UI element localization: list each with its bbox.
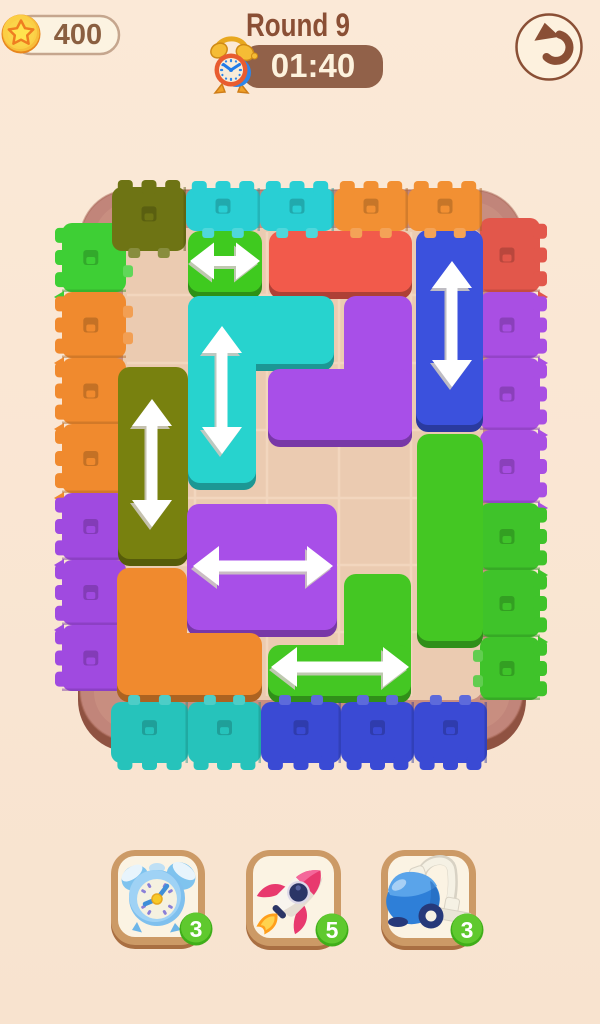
svg-text:Round 9: Round 9: [246, 7, 350, 43]
svg-text:3: 3: [461, 917, 474, 943]
svg-text:3: 3: [190, 916, 203, 942]
svg-text:400: 400: [54, 19, 102, 51]
svg-text:5: 5: [326, 917, 339, 943]
svg-text:01:40: 01:40: [271, 47, 355, 84]
